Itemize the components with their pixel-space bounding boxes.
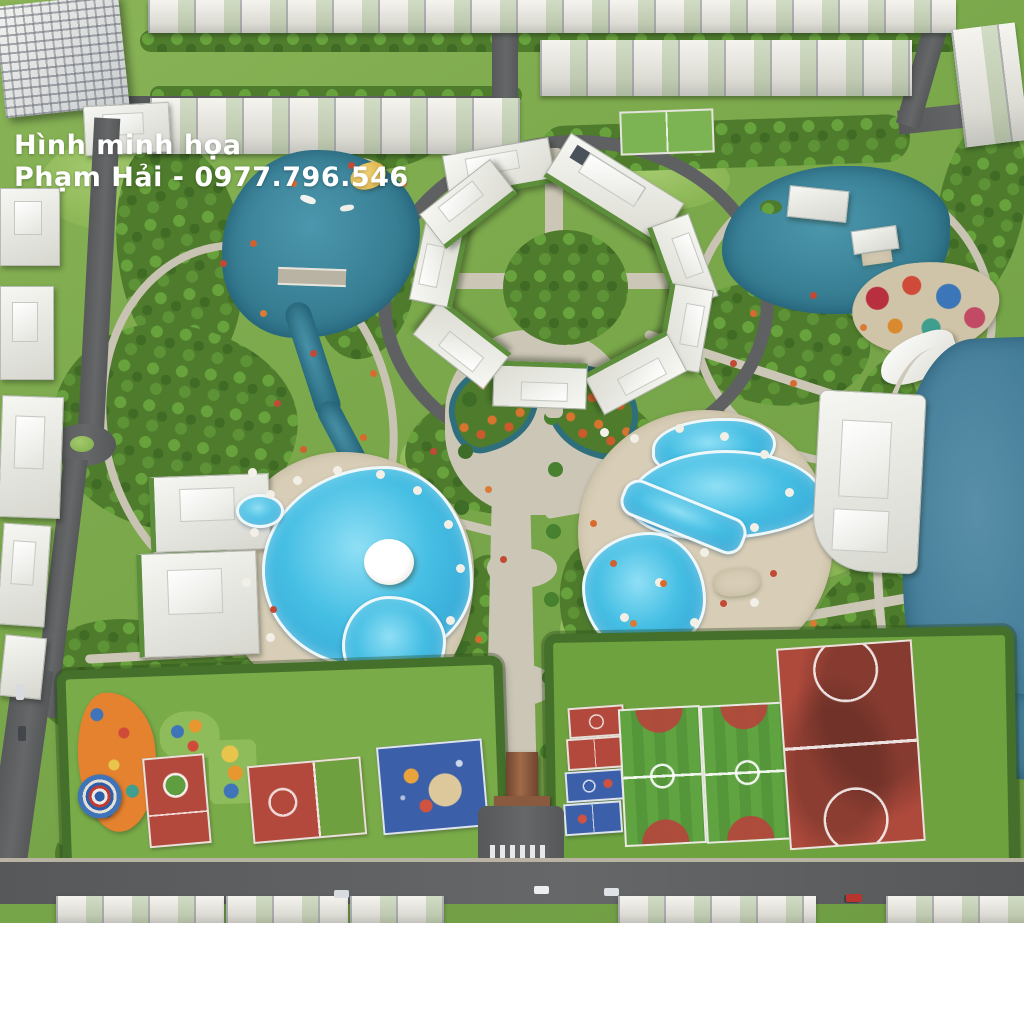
car-white bbox=[534, 886, 549, 894]
play-court-red-small bbox=[142, 753, 212, 848]
spine-plaza-node-2 bbox=[487, 548, 557, 588]
aerial-masterplan-render: Hình minh họa Phạm Hải - 0977.796.546 bbox=[0, 0, 1024, 923]
villa-west-2 bbox=[0, 286, 54, 380]
sports-zone bbox=[544, 626, 1018, 880]
bottom-townhouses-2 bbox=[226, 896, 348, 923]
flowering-shrubs-right-pool bbox=[610, 560, 617, 567]
watermark: Hình minh họa Phạm Hải - 0977.796.546 bbox=[14, 130, 409, 194]
car-red bbox=[846, 894, 862, 902]
event-canopy-umbrella bbox=[364, 539, 414, 585]
flowering-shrubs-lake bbox=[250, 240, 257, 247]
pool-umbrellas-right bbox=[600, 428, 609, 437]
bottom-white-margin bbox=[0, 923, 1024, 1024]
lake-islet-1 bbox=[760, 200, 782, 214]
townhouse-row-2-right bbox=[540, 40, 912, 96]
apartment-tower bbox=[0, 0, 130, 118]
mini-court-blue-2 bbox=[563, 800, 623, 836]
play-courts-red-double bbox=[247, 756, 367, 844]
car-parked-left-2 bbox=[18, 726, 26, 741]
left-clubhouse-south bbox=[136, 550, 260, 658]
townhouse-column-right bbox=[951, 23, 1024, 148]
bottom-townhouses-3 bbox=[350, 896, 444, 923]
complex-building-southeast bbox=[583, 331, 688, 416]
watermark-line-2: Phạm Hải - 0977.796.546 bbox=[14, 162, 409, 194]
roundabout-island bbox=[70, 436, 94, 452]
villa-west-1 bbox=[0, 188, 60, 266]
villa-west-4 bbox=[0, 522, 51, 627]
bottom-townhouses-1 bbox=[56, 896, 224, 923]
mini-court-red-1 bbox=[567, 704, 625, 739]
pool-umbrellas-left bbox=[248, 468, 257, 477]
bottom-townhouses-4 bbox=[618, 896, 816, 923]
townhouse-row-1 bbox=[148, 0, 956, 33]
flowering-shrubs-left-pool bbox=[300, 446, 307, 453]
central-complex bbox=[385, 138, 740, 433]
clubhouse-roof-box-2 bbox=[831, 509, 890, 553]
left-kids-pool bbox=[236, 494, 284, 528]
villa-west-3 bbox=[0, 395, 64, 519]
multi-sport-field-1 bbox=[618, 705, 707, 847]
spine-plaza-node-1 bbox=[490, 448, 554, 482]
lakeside-pavilion-1 bbox=[786, 185, 849, 223]
right-clubhouse bbox=[810, 389, 926, 574]
large-red-basketball-court bbox=[776, 639, 926, 850]
solar-roof-panel bbox=[569, 144, 647, 201]
lake-bridge bbox=[278, 267, 347, 287]
bottom-townhouses-5 bbox=[886, 896, 1024, 923]
playground-zone bbox=[56, 655, 509, 890]
watermark-line-1: Hình minh họa bbox=[14, 130, 409, 162]
mini-court-red-2 bbox=[566, 735, 624, 771]
play-court-blue bbox=[376, 738, 489, 835]
screenshot-canvas: Hình minh họa Phạm Hải - 0977.796.546 bbox=[0, 0, 1024, 1024]
car-parked-left-1 bbox=[16, 684, 24, 700]
complex-courtyard bbox=[503, 230, 628, 345]
complex-building-south bbox=[492, 360, 588, 409]
mini-court-blue-1 bbox=[565, 768, 625, 803]
